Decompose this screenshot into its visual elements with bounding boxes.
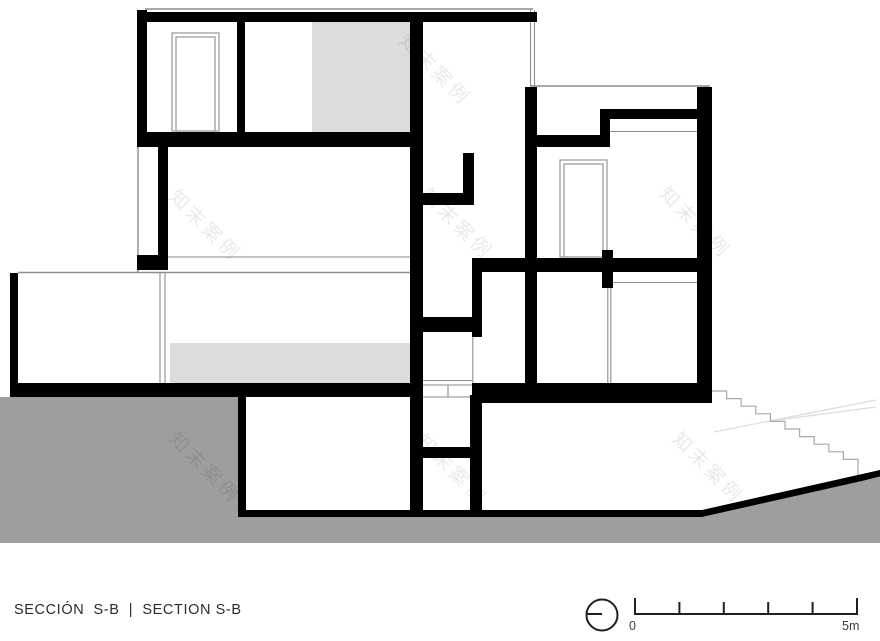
basement-left-wall <box>238 395 246 517</box>
background-panels <box>170 22 410 383</box>
door-top-left-outer <box>172 33 219 131</box>
panel-living-room-band <box>170 343 410 383</box>
ground-under-basement <box>238 517 702 543</box>
mid-left-wall <box>158 147 168 255</box>
rb-bottom-slab <box>472 383 710 403</box>
central-wall <box>410 12 423 517</box>
mid-slab-piece <box>137 255 168 270</box>
rb-left-wall <box>525 87 537 383</box>
rb-floor-slab <box>472 258 710 272</box>
scale-figure <box>586 598 857 631</box>
exterior-steps <box>712 391 858 475</box>
terrain-faint-line-a <box>714 400 876 432</box>
scale-start-label: 0 <box>629 619 636 633</box>
drawing-title: SECCIÓN S-B | SECTION S-B <box>14 602 242 618</box>
stair-landing-slab <box>423 317 482 332</box>
rb-step-upper-bar <box>600 109 712 119</box>
roof-end-cap <box>527 12 537 22</box>
upper-left-wall <box>137 10 147 147</box>
panel-top-left-room <box>312 22 410 132</box>
terrain-faint-line-b <box>770 407 876 421</box>
terrace-left-wall <box>10 273 18 397</box>
rb-under-slab-stub <box>602 272 613 288</box>
scale-end-label: 5m <box>842 619 859 633</box>
ground-left <box>0 397 238 543</box>
roof-slab <box>137 12 528 22</box>
ground-floor-slab <box>10 383 423 397</box>
architectural-section-drawing: 知末案例 知末案例 知末案例 知末案例 知末案例 知末案例 知末案例 SECCI… <box>0 0 880 641</box>
right-building <box>472 87 712 403</box>
stair-core <box>410 12 482 517</box>
door-right-outer <box>560 160 607 257</box>
stair-hook-stub <box>463 153 474 205</box>
upper-partition <box>237 22 245 132</box>
rb-lower-ceiling-bar <box>525 135 610 147</box>
section-geometry <box>0 0 880 641</box>
door-right-inner <box>564 164 603 257</box>
stair-wall-lower <box>470 395 482 517</box>
rb-threshold-stub <box>602 250 613 259</box>
rb-right-wall <box>697 87 712 403</box>
basement-landing-bar <box>420 447 472 458</box>
outdoor-stairs <box>712 391 876 475</box>
upper-floor-slab <box>137 132 423 147</box>
terrain <box>0 397 880 543</box>
door-top-left-inner <box>176 37 215 131</box>
